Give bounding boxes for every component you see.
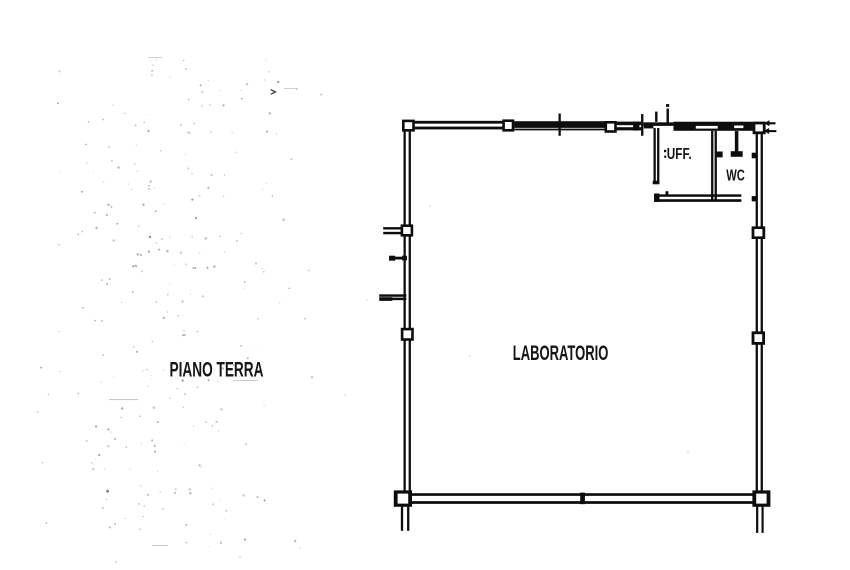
svg-text:UFF.: UFF. [667, 146, 692, 163]
svg-text:LABORATORIO: LABORATORIO [513, 342, 609, 365]
svg-text:PIANO TERRA: PIANO TERRA [170, 359, 264, 382]
svg-text:WC: WC [726, 167, 745, 184]
